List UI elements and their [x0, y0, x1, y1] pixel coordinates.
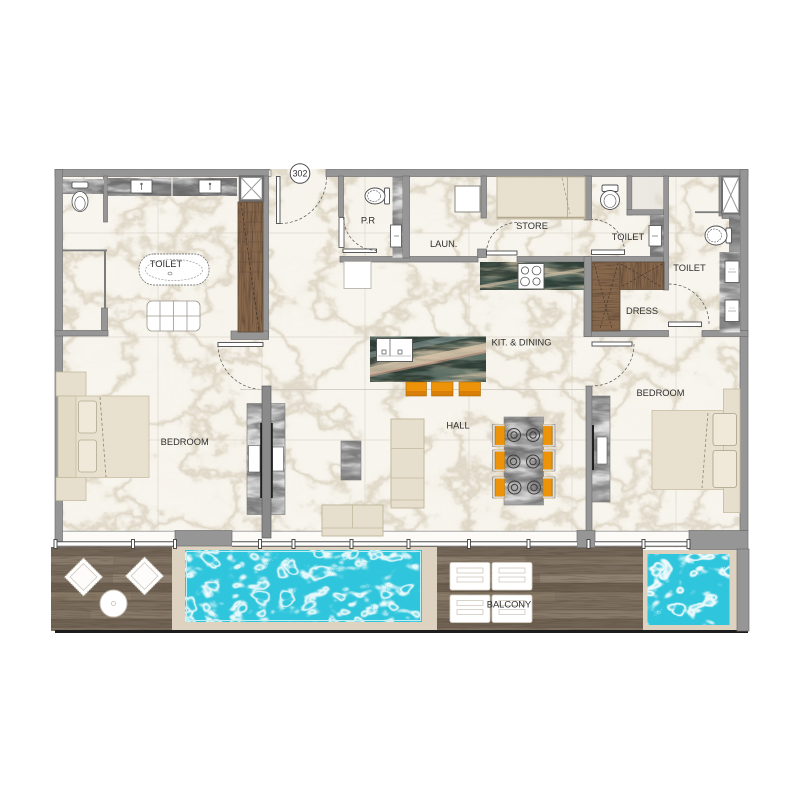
svg-text:HALL: HALL — [446, 421, 469, 431]
svg-text:P.R: P.R — [361, 216, 376, 226]
svg-text:BEDROOM: BEDROOM — [161, 437, 209, 447]
svg-text:TOILET: TOILET — [673, 263, 706, 273]
svg-text:302: 302 — [293, 169, 308, 179]
svg-text:BEDROOM: BEDROOM — [636, 388, 684, 398]
svg-text:BALCONY: BALCONY — [487, 600, 531, 610]
svg-text:TOILET: TOILET — [612, 232, 645, 242]
svg-text:KIT. & DINING: KIT. & DINING — [492, 338, 552, 348]
svg-text:LAUN.: LAUN. — [430, 239, 457, 249]
svg-text:DRESS: DRESS — [626, 306, 658, 316]
svg-text:STORE: STORE — [516, 221, 548, 231]
svg-text:TOILET: TOILET — [150, 259, 183, 269]
